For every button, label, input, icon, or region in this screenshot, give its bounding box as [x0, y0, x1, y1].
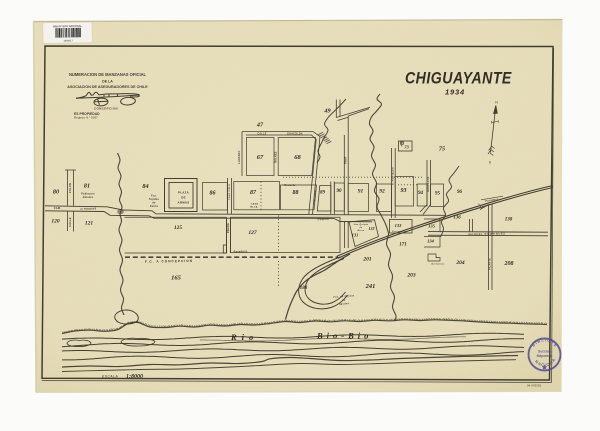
svg-text:Cerveceria: Cerveceria	[392, 231, 407, 233]
svg-text:201: 201	[362, 257, 372, 263]
svg-text:95: 95	[435, 192, 441, 197]
svg-text:Germinnos: Germinnos	[431, 264, 445, 266]
svg-text:CALLE: CALLE	[69, 217, 72, 227]
svg-text:Seccion: Seccion	[538, 350, 551, 354]
svg-text:Punto: Punto	[150, 205, 159, 208]
svg-text:165: 165	[171, 275, 182, 282]
svg-text:49: 49	[323, 108, 330, 115]
svg-text:ASOCIACION DE ASEGURADORES: ASOCIACION DE ASEGURADORES DE CHILE	[67, 85, 148, 89]
svg-text:S.: S.	[436, 257, 439, 259]
svg-text:MANUEL RODRIGUEZ: MANUEL RODRIGUEZ	[468, 231, 505, 236]
svg-text:134: 134	[427, 239, 435, 244]
svg-text:67: 67	[257, 154, 264, 161]
svg-text:89: 89	[320, 191, 326, 196]
svg-text:136: 136	[453, 216, 461, 221]
svg-text:96: 96	[457, 190, 463, 195]
svg-text:73: 73	[404, 145, 409, 150]
svg-text:CAM.: CAM.	[54, 207, 61, 210]
svg-text:F.C. A CONCEPCION: F.C. A CONCEPCION	[145, 259, 193, 264]
svg-text:1:8000: 1:8000	[126, 374, 143, 380]
svg-text:135: 135	[428, 224, 436, 229]
svg-text:de: de	[152, 202, 156, 205]
svg-text:88: 88	[293, 190, 299, 196]
svg-text:LAUTARO: LAUTARO	[238, 150, 241, 163]
svg-text:Paradero: Paradero	[233, 249, 247, 253]
svg-text:87: 87	[250, 190, 257, 196]
svg-text:Escuela: Escuela	[284, 184, 296, 187]
svg-text:CASA: CASA	[251, 203, 259, 206]
svg-text:47: 47	[256, 122, 264, 129]
svg-text:204: 204	[455, 260, 465, 266]
svg-text:PICARTE: PICARTE	[489, 258, 492, 270]
svg-text:GUACOLDA: GUACOLDA	[287, 132, 303, 135]
svg-text:188: 188	[300, 286, 308, 291]
svg-text:DE LA: DE LA	[102, 79, 113, 83]
svg-text:DE: DE	[181, 196, 186, 200]
svg-text:75: 75	[439, 146, 445, 153]
svg-text:84: 84	[142, 183, 148, 190]
svg-text:PRAT: PRAT	[345, 156, 348, 164]
svg-text:Tejidos: Tejidos	[149, 198, 160, 201]
svg-text:04-043392: 04-043392	[527, 384, 542, 388]
svg-text:CONCEPCION: CONCEPCION	[94, 107, 118, 111]
svg-text:CALLE: CALLE	[257, 132, 266, 135]
svg-text:120: 120	[51, 219, 60, 225]
svg-text:208: 208	[504, 261, 514, 267]
svg-text:Las Quinta: Las Quinta	[354, 223, 369, 226]
svg-text:125: 125	[174, 225, 183, 231]
svg-text:BLCA.: BLCA.	[250, 205, 258, 208]
svg-text:203: 203	[406, 273, 416, 279]
svg-text:CHIGUAYANTE: CHIGUAYANTE	[405, 69, 512, 87]
svg-text:80: 80	[53, 189, 59, 196]
svg-text:Delante: Delante	[83, 196, 94, 199]
svg-text:D. PORTALES: D. PORTALES	[392, 167, 395, 185]
svg-text:Bio-Bio: Bio-Bio	[316, 331, 372, 341]
svg-text:132: 132	[369, 226, 375, 231]
svg-text:86: 86	[210, 191, 216, 197]
svg-text:92: 92	[379, 189, 385, 195]
svg-text:FREIRE: FREIRE	[228, 223, 230, 233]
svg-text:BIBLIOTECA NACIONAL: BIBLIOTECA NACIONAL	[53, 24, 83, 29]
svg-text:Aires: Aires	[357, 230, 365, 232]
svg-text:BULNES: BULNES	[275, 151, 277, 162]
svg-text:de: de	[359, 227, 363, 229]
svg-text:90: 90	[337, 189, 343, 194]
svg-text:COLON: COLON	[69, 183, 72, 193]
svg-text:Mapoteca: Mapoteca	[537, 354, 553, 358]
svg-text:ESCALA: ESCALA	[102, 375, 118, 379]
svg-text:ARMAS: ARMAS	[177, 201, 189, 205]
svg-text:133: 133	[395, 223, 403, 228]
svg-text:68: 68	[294, 154, 301, 161]
svg-text:93: 93	[401, 188, 407, 194]
svg-text:de: de	[342, 300, 346, 302]
svg-text:1934: 1934	[445, 88, 465, 97]
svg-text:91: 91	[358, 189, 364, 195]
svg-text:Rio: Rio	[230, 332, 258, 342]
svg-text:94: 94	[418, 191, 424, 196]
svg-text:COLO COLO: COLO COLO	[229, 184, 231, 200]
svg-text:Camino: Camino	[318, 217, 330, 221]
svg-text:121: 121	[85, 221, 94, 227]
svg-text:1602017: 1602017	[63, 39, 73, 42]
svg-text:131: 131	[352, 233, 359, 238]
svg-text:O`HIGGINS: O`HIGGINS	[80, 207, 96, 211]
svg-text:138: 138	[505, 218, 513, 223]
svg-text:127: 127	[248, 230, 257, 236]
svg-text:Registro N.° 5937: Registro N.° 5937	[74, 116, 98, 120]
svg-text:PLAZA: PLAZA	[178, 191, 190, 195]
svg-text:171: 171	[399, 243, 407, 248]
svg-text:BUSTILLOS: BUSTILLOS	[428, 176, 430, 191]
svg-text:241: 241	[365, 283, 376, 290]
svg-text:Poblacion: Poblacion	[81, 194, 95, 196]
svg-text:NUMERACION DE MANZANAS OFIC: NUMERACION DE MANZANAS OFICIAL	[69, 72, 147, 77]
svg-text:81: 81	[84, 183, 90, 190]
